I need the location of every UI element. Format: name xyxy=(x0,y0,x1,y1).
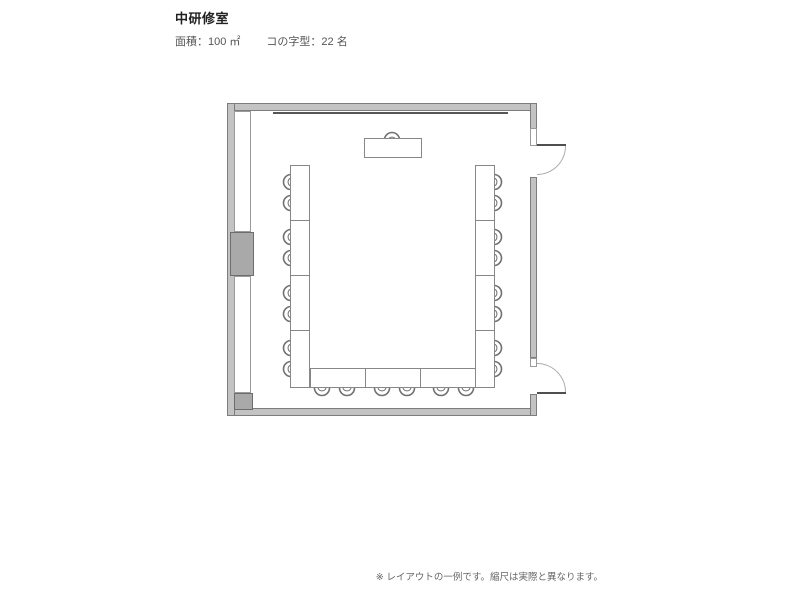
wall-right-lower xyxy=(530,394,537,416)
front-board-line xyxy=(273,112,508,114)
chair-icon xyxy=(337,387,357,399)
chair-icon xyxy=(397,387,417,399)
door-leaf-bottom xyxy=(537,392,566,394)
table-right-1 xyxy=(475,165,495,221)
wall-pillar xyxy=(230,232,254,276)
table-bottom-2 xyxy=(365,368,421,388)
table-bottom-3 xyxy=(420,368,476,388)
wall-bottom xyxy=(227,408,537,416)
chair-icon xyxy=(372,387,392,399)
door-frame-top xyxy=(530,128,537,146)
table-bottom-1 xyxy=(310,368,366,388)
window-strip-upper xyxy=(234,111,251,232)
page: 中研修室 面積：100 ㎡ コの字型：22 名 ※ レイアウトの一例です。縮尺は… xyxy=(0,0,800,600)
table-right-2 xyxy=(475,220,495,276)
door-swing-bottom xyxy=(537,363,566,392)
presenter-table xyxy=(364,138,422,158)
disclaimer-note: ※ レイアウトの一例です。縮尺は実際と異なります。 xyxy=(376,569,603,583)
table-right-3 xyxy=(475,275,495,331)
door-frame-bottom xyxy=(530,358,537,367)
chair-icon xyxy=(431,387,451,399)
floorplan-diagram xyxy=(0,0,800,600)
chair-icon xyxy=(456,387,476,399)
window-strip-lower xyxy=(234,276,251,393)
table-left-2 xyxy=(290,220,310,276)
table-left-4 xyxy=(290,330,310,388)
wall-corner-block xyxy=(234,393,253,410)
door-swing-top xyxy=(537,146,566,175)
table-left-3 xyxy=(290,275,310,331)
chair-icon xyxy=(312,387,332,399)
wall-right-upper xyxy=(530,103,537,129)
wall-top xyxy=(227,103,537,111)
table-right-4 xyxy=(475,330,495,388)
wall-right-middle xyxy=(530,177,537,358)
table-left-1 xyxy=(290,165,310,221)
